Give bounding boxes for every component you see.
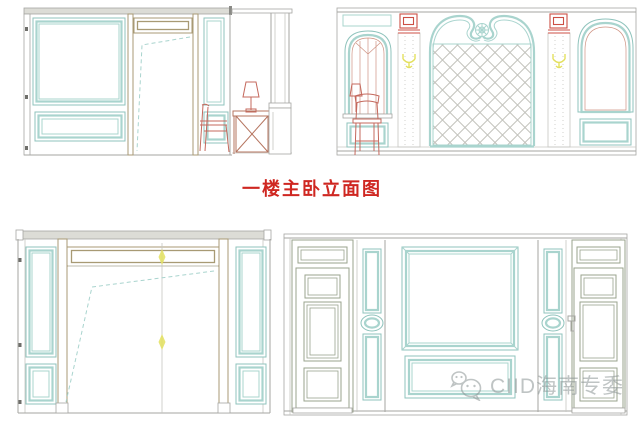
elevation-top-left xyxy=(24,6,292,155)
double-door-opening xyxy=(56,239,230,413)
wainscot-floral-panel-narrow xyxy=(204,18,224,105)
wall-pier xyxy=(269,13,291,154)
cad-elevation-sheet: 一楼主卧立面图 CIID海南专委 xyxy=(0,0,640,423)
drawing-title: 一楼主卧立面图 xyxy=(242,179,402,200)
elevation-drawings-canvas xyxy=(0,0,640,423)
cornice xyxy=(24,8,230,14)
rosette-icon xyxy=(476,24,489,37)
wainscot-floral-panel-large xyxy=(33,18,125,105)
floral-stile-panel xyxy=(26,247,56,404)
table-lamp-symbol xyxy=(243,82,259,112)
watermark: CIID海南专委 xyxy=(449,369,624,401)
watermark-text: CIID海南专委 xyxy=(490,370,624,400)
wall-corner xyxy=(229,6,232,15)
centerline-marker xyxy=(159,334,166,350)
door-swing-dashes xyxy=(66,271,214,402)
cornice xyxy=(18,231,270,239)
side-table-symbol xyxy=(233,111,271,154)
side-wall-band xyxy=(232,9,292,13)
door-swing-dashes xyxy=(137,37,190,151)
paneled-door xyxy=(292,240,353,413)
elevation-top-right xyxy=(337,8,636,155)
window-bay xyxy=(343,15,392,155)
door-opening xyxy=(128,14,198,155)
arched-mesh-panel xyxy=(578,19,633,145)
elevation-bottom-left xyxy=(16,230,271,413)
window-sill xyxy=(343,114,392,118)
wall-edge xyxy=(24,14,30,155)
wainscot-lower-panel xyxy=(35,112,125,141)
floral-stile-panel xyxy=(236,247,266,404)
wechat-logo-icon xyxy=(449,369,485,401)
